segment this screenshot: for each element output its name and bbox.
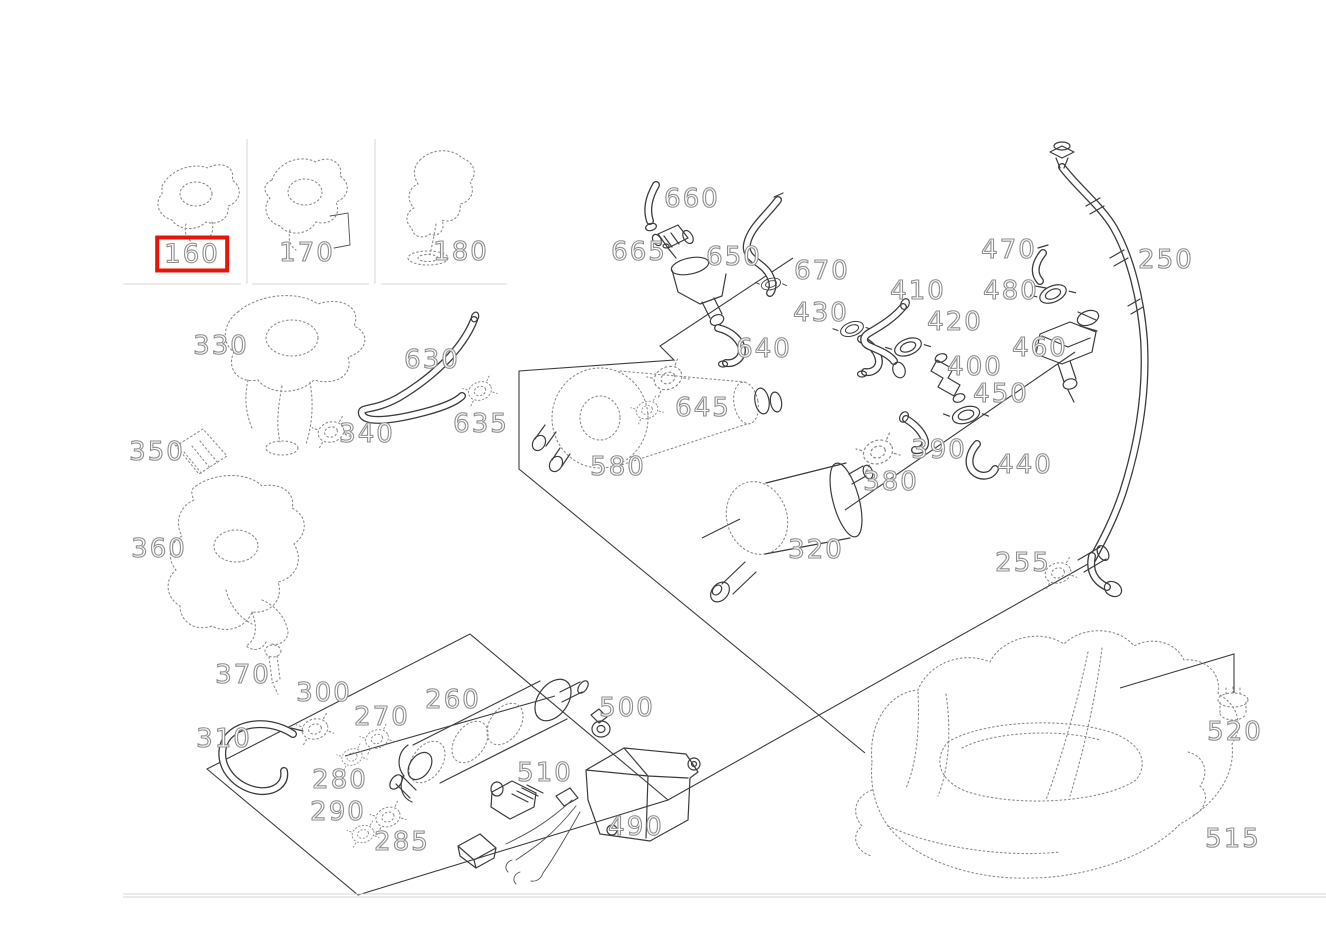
wiring-harness-sketch <box>458 800 580 884</box>
part-label-320[interactable]: 320 <box>788 537 844 563</box>
part-label-630[interactable]: 630 <box>404 347 460 373</box>
part-660-sketch <box>645 185 657 232</box>
part-380-sketch <box>855 432 901 471</box>
part-170-sketch <box>265 159 350 250</box>
part-label-290[interactable]: 290 <box>310 799 366 825</box>
part-label-580[interactable]: 580 <box>590 454 646 480</box>
part-label-310[interactable]: 310 <box>196 726 252 752</box>
part-410-sketch <box>864 297 911 379</box>
part-label-665[interactable]: 665 <box>611 239 667 265</box>
part-label-285[interactable]: 285 <box>374 829 430 855</box>
part-label-350[interactable]: 350 <box>129 439 185 465</box>
part-label-280[interactable]: 280 <box>312 767 368 793</box>
part-label-180[interactable]: 180 <box>433 239 489 265</box>
part-label-520[interactable]: 520 <box>1207 719 1263 745</box>
part-635-sketch <box>462 376 498 407</box>
part-645-sketch <box>645 358 690 398</box>
part-label-450[interactable]: 450 <box>973 381 1029 407</box>
part-label-635[interactable]: 635 <box>453 411 509 437</box>
part-label-390[interactable]: 390 <box>911 437 967 463</box>
part-label-440[interactable]: 440 <box>997 452 1053 478</box>
part-label-460[interactable]: 460 <box>1012 335 1068 361</box>
bottom-divider <box>123 894 1326 897</box>
part-label-480[interactable]: 480 <box>983 278 1039 304</box>
part-label-420[interactable]: 420 <box>927 309 983 335</box>
part-label-170[interactable]: 170 <box>279 240 335 266</box>
part-360-sketch <box>168 476 304 650</box>
part-label-360[interactable]: 360 <box>131 536 187 562</box>
part-515-sketch <box>856 631 1238 878</box>
part-label-660[interactable]: 660 <box>664 186 720 212</box>
part-label-370[interactable]: 370 <box>215 662 271 688</box>
part-label-510[interactable]: 510 <box>517 760 573 786</box>
part-label-270[interactable]: 270 <box>354 704 410 730</box>
part-label-380[interactable]: 380 <box>863 469 919 495</box>
part-250-sketch <box>1050 142 1145 600</box>
part-label-160[interactable]: 160 <box>155 236 229 273</box>
part-label-260[interactable]: 260 <box>425 687 481 713</box>
part-label-645[interactable]: 645 <box>675 395 731 421</box>
part-520-sketch <box>1218 686 1248 720</box>
part-160-sketch <box>158 165 239 242</box>
part-320-sketch <box>707 460 875 606</box>
part-label-515[interactable]: 515 <box>1205 826 1261 852</box>
part-580-sketch <box>530 368 783 474</box>
part-label-300[interactable]: 300 <box>296 680 352 706</box>
part-label-250[interactable]: 250 <box>1138 247 1194 273</box>
part-label-340[interactable]: 340 <box>339 421 395 447</box>
part-label-670[interactable]: 670 <box>794 258 850 284</box>
part-label-330[interactable]: 330 <box>193 333 249 359</box>
part-label-640[interactable]: 640 <box>736 336 792 362</box>
part-label-410[interactable]: 410 <box>890 278 946 304</box>
part-label-650[interactable]: 650 <box>706 244 762 270</box>
part-label-430[interactable]: 430 <box>793 300 849 326</box>
part-label-400[interactable]: 400 <box>947 354 1003 380</box>
part-440-sketch <box>970 444 995 476</box>
part-300-sketch <box>295 713 334 745</box>
diagram-canvas: 1601701803303403503603706306355806456406… <box>0 0 1326 938</box>
part-label-490[interactable]: 490 <box>608 814 664 840</box>
part-label-470[interactable]: 470 <box>981 237 1037 263</box>
part-label-255[interactable]: 255 <box>995 550 1051 576</box>
part-645-sketch-2 <box>630 395 664 424</box>
part-label-500[interactable]: 500 <box>599 695 655 721</box>
parts-diagram-artwork <box>0 0 1326 938</box>
